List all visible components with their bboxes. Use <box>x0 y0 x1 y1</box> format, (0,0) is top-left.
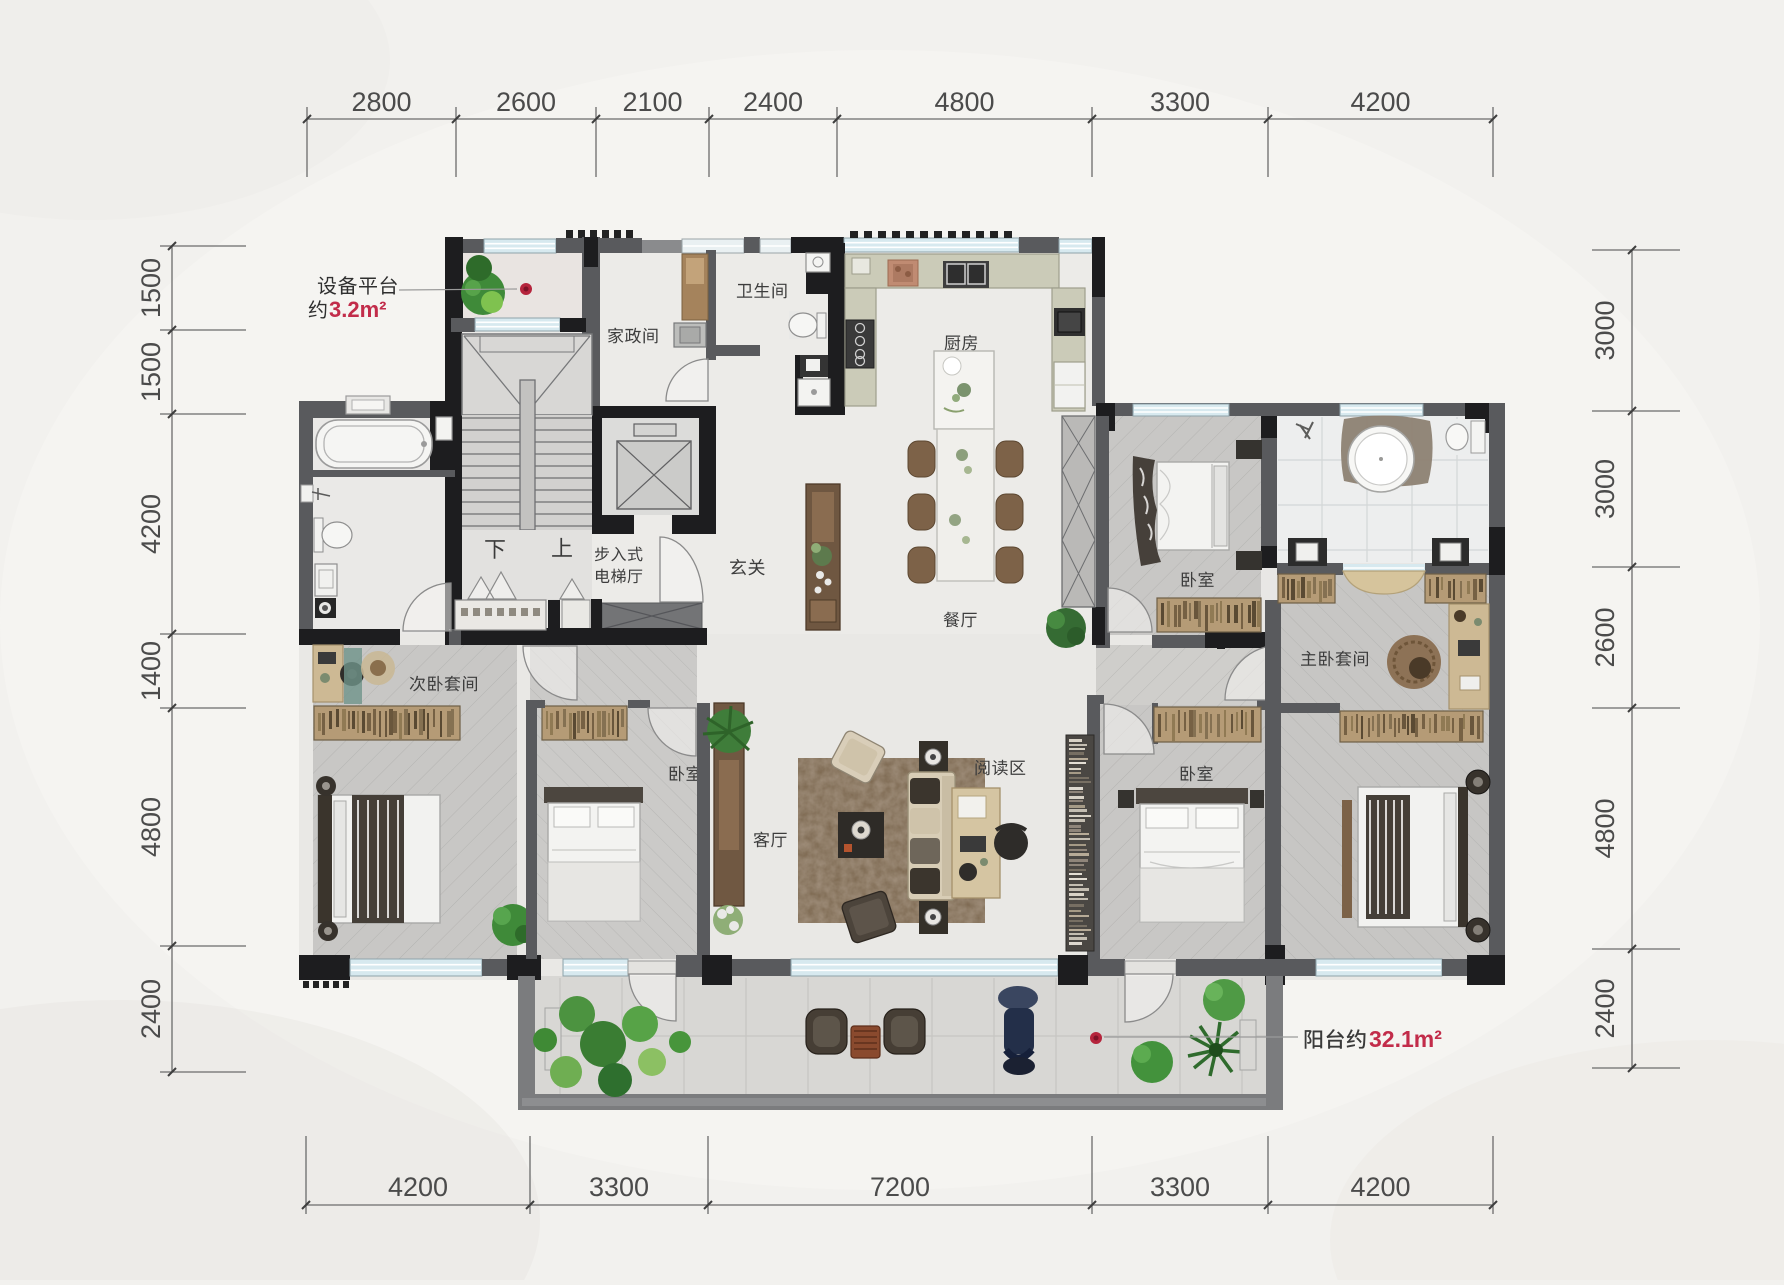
svg-text:7200: 7200 <box>870 1172 930 1202</box>
svg-text:4200: 4200 <box>388 1172 448 1202</box>
svg-text:3000: 3000 <box>1590 300 1620 360</box>
svg-text:2400: 2400 <box>136 979 166 1039</box>
svg-text:2100: 2100 <box>622 87 682 117</box>
svg-text:32.1m²: 32.1m² <box>1369 1026 1442 1052</box>
svg-text:3300: 3300 <box>1150 87 1210 117</box>
svg-text:3000: 3000 <box>1590 459 1620 519</box>
svg-text:3300: 3300 <box>589 1172 649 1202</box>
svg-text:2400: 2400 <box>1590 978 1620 1038</box>
svg-text:1500: 1500 <box>136 258 166 318</box>
svg-text:2400: 2400 <box>743 87 803 117</box>
svg-text:2800: 2800 <box>351 87 411 117</box>
svg-text:4200: 4200 <box>136 494 166 554</box>
svg-text:2600: 2600 <box>1590 607 1620 667</box>
svg-text:4800: 4800 <box>136 797 166 857</box>
svg-text:3.2m²: 3.2m² <box>329 297 386 322</box>
svg-text:2600: 2600 <box>496 87 556 117</box>
svg-text:4200: 4200 <box>1350 1172 1410 1202</box>
svg-text:1400: 1400 <box>136 641 166 701</box>
svg-text:3300: 3300 <box>1150 1172 1210 1202</box>
svg-text:1500: 1500 <box>136 342 166 402</box>
svg-text:4800: 4800 <box>1590 798 1620 858</box>
svg-text:4800: 4800 <box>934 87 994 117</box>
svg-text:4200: 4200 <box>1350 87 1410 117</box>
